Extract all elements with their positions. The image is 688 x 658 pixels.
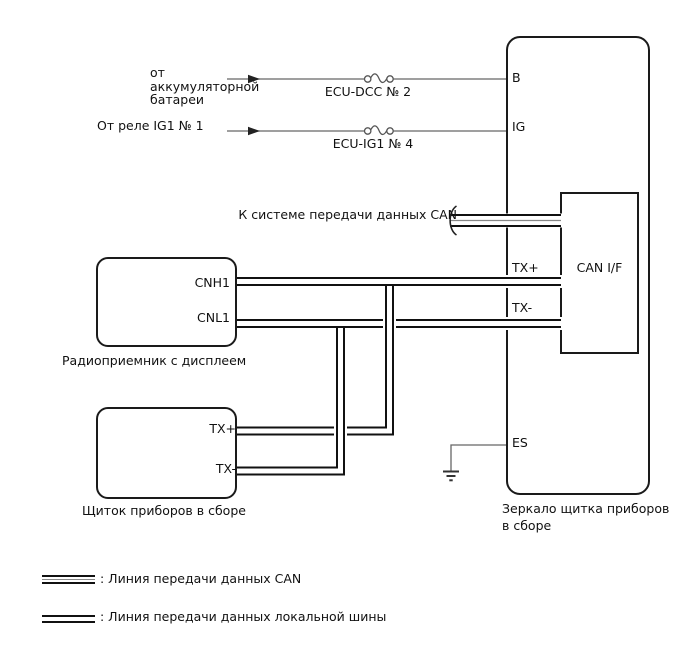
radio-terminal-cnl1: CNL1 (150, 311, 230, 325)
can-h-wire (237, 278, 562, 285)
arrow-right-icon (248, 127, 260, 135)
local-bus-line-symbol (42, 615, 95, 623)
can-bus-stub (450, 206, 562, 235)
mirror-caption: Зеркало щитка приборов в сборе (502, 500, 669, 534)
can-interface-label: CAN I/F (560, 261, 639, 275)
legend-can-label: : Линия передачи данных CAN (100, 572, 301, 586)
branch-wire-txp (237, 286, 393, 435)
mirror-terminal-txp: TX+ (512, 261, 539, 275)
battery-source-label: от аккумуляторной батареи (150, 66, 259, 107)
battery-source-line2: аккумуляторной (150, 80, 259, 94)
instrument-terminal-txm: TX- (156, 462, 236, 476)
mirror-terminal-es: ES (512, 436, 528, 450)
battery-source-line3: батареи (150, 93, 259, 107)
mirror-caption-line1: Зеркало щитка приборов (502, 500, 669, 517)
battery-source-line1: от (150, 66, 259, 80)
mirror-terminal-txm: TX- (512, 301, 532, 315)
mirror-terminal-ig: IG (512, 120, 525, 134)
fuse-ecu-dcc-label: ECU-DCC № 2 (318, 85, 418, 99)
mirror-terminal-b: B (512, 71, 521, 85)
instrument-terminal-txp: TX+ (156, 422, 236, 436)
mirror-caption-line2: в сборе (502, 517, 669, 534)
can-l-wire (237, 320, 562, 327)
ig-wire (227, 126, 506, 135)
instrument-caption: Щиток приборов в сборе (82, 504, 246, 518)
can-system-label: К системе передачи данных CAN (237, 208, 457, 222)
battery-wire (227, 74, 506, 83)
wiring-diagram: от аккумуляторной батареи От реле IG1 № … (0, 0, 688, 658)
fuse-icon (365, 74, 394, 83)
can-line-symbol (42, 575, 95, 584)
radio-caption: Радиоприемник с дисплеем (62, 354, 246, 368)
can-line-symbol-mid (42, 579, 95, 580)
branch-wire-txm (237, 328, 344, 475)
legend-local-label: : Линия передачи данных локальной шины (100, 610, 386, 624)
fuse-icon (365, 126, 394, 135)
es-wire (443, 445, 506, 480)
fuse-ecu-ig1-label: ECU-IG1 № 4 (323, 137, 423, 151)
radio-terminal-cnh1: CNH1 (150, 276, 230, 290)
ground-icon (443, 472, 459, 481)
relay-source-label: От реле IG1 № 1 (97, 119, 204, 133)
